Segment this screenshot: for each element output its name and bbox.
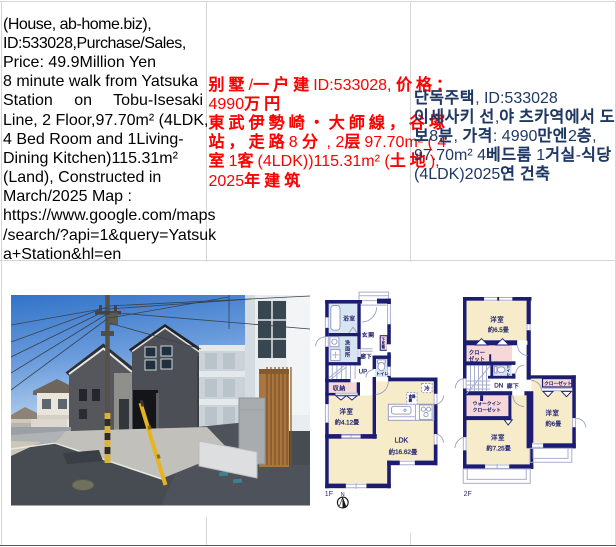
svg-text:約6畳: 約6畳 [546, 420, 562, 428]
svg-text:玄関: 玄関 [362, 331, 375, 339]
svg-text:レ: レ [507, 373, 511, 377]
svg-text:廊下: 廊下 [361, 352, 373, 360]
svg-text:浴室: 浴室 [343, 314, 355, 322]
svg-text:洋室: 洋室 [546, 408, 560, 417]
svg-text:洋室: 洋室 [490, 314, 504, 323]
svg-text:約6.5畳: 約6.5畳 [488, 326, 509, 334]
svg-text:N: N [341, 492, 345, 498]
svg-text:約7.25畳: 約7.25畳 [486, 445, 510, 453]
svg-text:クロー: クロー [469, 350, 485, 357]
svg-text:洗: 洗 [345, 339, 351, 347]
svg-text:1F: 1F [325, 491, 333, 498]
svg-text:ウォークイン: ウォークイン [473, 400, 501, 407]
svg-text:廊下: 廊下 [507, 382, 519, 390]
svg-text:2F: 2F [464, 491, 472, 498]
svg-text:約16.62畳: 約16.62畳 [389, 447, 418, 456]
svg-text:所: 所 [345, 351, 350, 359]
svg-text:面: 面 [345, 346, 350, 353]
svg-text:収納: 収納 [333, 384, 346, 392]
svg-text:DN: DN [494, 383, 503, 390]
svg-text:LDK: LDK [395, 438, 409, 445]
svg-text:約4.12畳: 約4.12畳 [335, 419, 359, 427]
svg-text:冷: 冷 [424, 385, 430, 393]
svg-text:クローゼット: クローゼット [473, 407, 501, 414]
svg-text:ゼット: ゼット [469, 355, 485, 363]
svg-text:クローゼット: クローゼット [544, 380, 572, 387]
svg-text:洋室: 洋室 [340, 407, 354, 416]
svg-text:洋室: 洋室 [491, 432, 505, 441]
svg-text:トイレ: トイレ [376, 371, 389, 376]
svg-text:UP: UP [359, 369, 367, 375]
